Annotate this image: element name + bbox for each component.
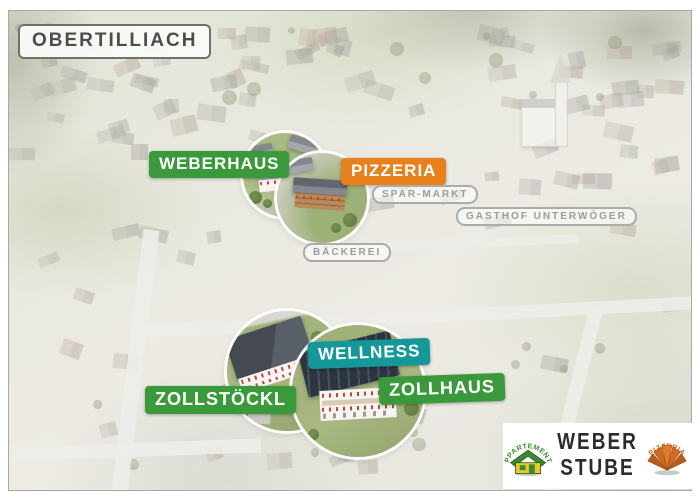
bg-tree bbox=[93, 400, 102, 409]
bg-house bbox=[131, 144, 148, 160]
brand-wordmark: WEBER STUBE bbox=[557, 430, 638, 482]
bg-house bbox=[206, 230, 222, 244]
bg-house bbox=[603, 122, 635, 144]
bg-house bbox=[489, 34, 516, 48]
bg-house bbox=[654, 79, 684, 95]
bg-house bbox=[485, 171, 500, 182]
bg-tree bbox=[489, 53, 503, 67]
bg-tree bbox=[511, 360, 520, 369]
pizzeria-chanterelle-icon: PIZZERIA bbox=[642, 428, 692, 484]
bg-tree bbox=[419, 72, 431, 84]
appartements-house-icon: APPARTEMENTS bbox=[503, 428, 553, 484]
bg-house bbox=[408, 103, 425, 117]
bg-house bbox=[30, 81, 55, 102]
bg-house bbox=[218, 28, 236, 40]
bg-house bbox=[312, 27, 338, 45]
bg-tree bbox=[560, 365, 568, 373]
location-map: OBERTILLIACH WEBERHAUS PIZZERIA SPAR-MAR… bbox=[0, 0, 700, 500]
brand-line-stube: STUBE bbox=[557, 456, 638, 482]
bg-tree bbox=[247, 82, 261, 96]
page-title: OBERTILLIACH bbox=[18, 24, 211, 59]
bg-house bbox=[519, 178, 542, 196]
bg-house bbox=[9, 147, 36, 160]
bg-house bbox=[169, 114, 198, 136]
bg-tree bbox=[412, 438, 425, 451]
bg-house bbox=[616, 91, 644, 109]
church-landmark bbox=[521, 59, 577, 151]
bg-tree bbox=[595, 343, 606, 354]
marker-baeckerei: BÄCKEREI bbox=[303, 243, 391, 262]
bg-house bbox=[238, 59, 269, 75]
bg-house bbox=[358, 459, 379, 474]
bg-tree bbox=[311, 448, 320, 457]
marker-zollstoeckl: ZOLLSTÖCKL bbox=[145, 386, 296, 414]
bg-tree bbox=[522, 342, 532, 352]
bg-tree bbox=[608, 36, 622, 50]
bg-house bbox=[37, 251, 60, 268]
marker-zollhaus: ZOLLHAUS bbox=[379, 373, 506, 405]
bg-house bbox=[266, 452, 293, 471]
marker-pizzeria: PIZZERIA bbox=[341, 158, 446, 185]
bg-house bbox=[583, 172, 613, 189]
bg-house bbox=[285, 48, 313, 66]
bg-house bbox=[46, 111, 64, 123]
bg-house bbox=[99, 421, 119, 439]
bg-house bbox=[619, 144, 638, 159]
bg-house bbox=[654, 156, 680, 174]
appartements-label: APPARTEMENTS bbox=[503, 428, 553, 464]
bg-tree bbox=[222, 90, 237, 105]
bg-house bbox=[59, 338, 84, 360]
marker-gasthof-unterwoeger: GASTHOF UNTERWÖGER bbox=[456, 207, 637, 226]
bg-house bbox=[86, 77, 115, 93]
bg-house bbox=[111, 222, 141, 240]
weberstube-logo: APPARTEMENTS WEBER STUBE PIZZERIA bbox=[503, 423, 692, 489]
bg-house bbox=[209, 74, 238, 93]
bg-house bbox=[72, 287, 95, 305]
brand-line-weber: WEBER bbox=[557, 430, 638, 456]
bg-house bbox=[244, 26, 270, 43]
marker-weberhaus: WEBERHAUS bbox=[149, 151, 289, 178]
svg-text:APPARTEMENTS: APPARTEMENTS bbox=[503, 428, 553, 464]
bg-house bbox=[176, 249, 196, 266]
bg-tree bbox=[390, 42, 404, 56]
bg-house bbox=[196, 103, 227, 123]
marker-spar-markt: SPAR-MARKT bbox=[372, 185, 478, 204]
bg-tree bbox=[483, 32, 490, 39]
marker-wellness: WELLNESS bbox=[308, 338, 431, 369]
bg-tree bbox=[288, 27, 295, 34]
